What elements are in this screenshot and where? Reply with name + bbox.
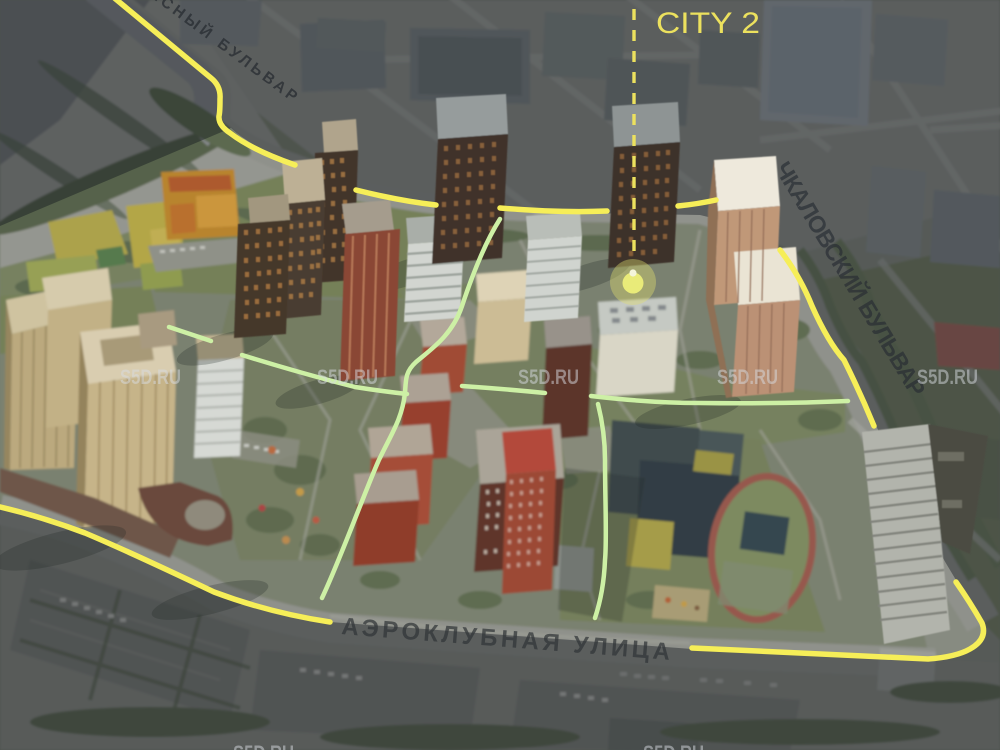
svg-text:S5D.RU: S5D.RU xyxy=(233,742,294,750)
svg-text:CITY 2: CITY 2 xyxy=(656,7,760,40)
svg-text:S5D.RU: S5D.RU xyxy=(717,366,778,389)
svg-text:S5D.RU: S5D.RU xyxy=(643,742,704,750)
svg-text:S5D.RU: S5D.RU xyxy=(317,366,378,389)
svg-text:S5D.RU: S5D.RU xyxy=(917,366,978,389)
svg-text:S5D.RU: S5D.RU xyxy=(518,366,579,389)
svg-text:S5D.RU: S5D.RU xyxy=(120,366,181,389)
